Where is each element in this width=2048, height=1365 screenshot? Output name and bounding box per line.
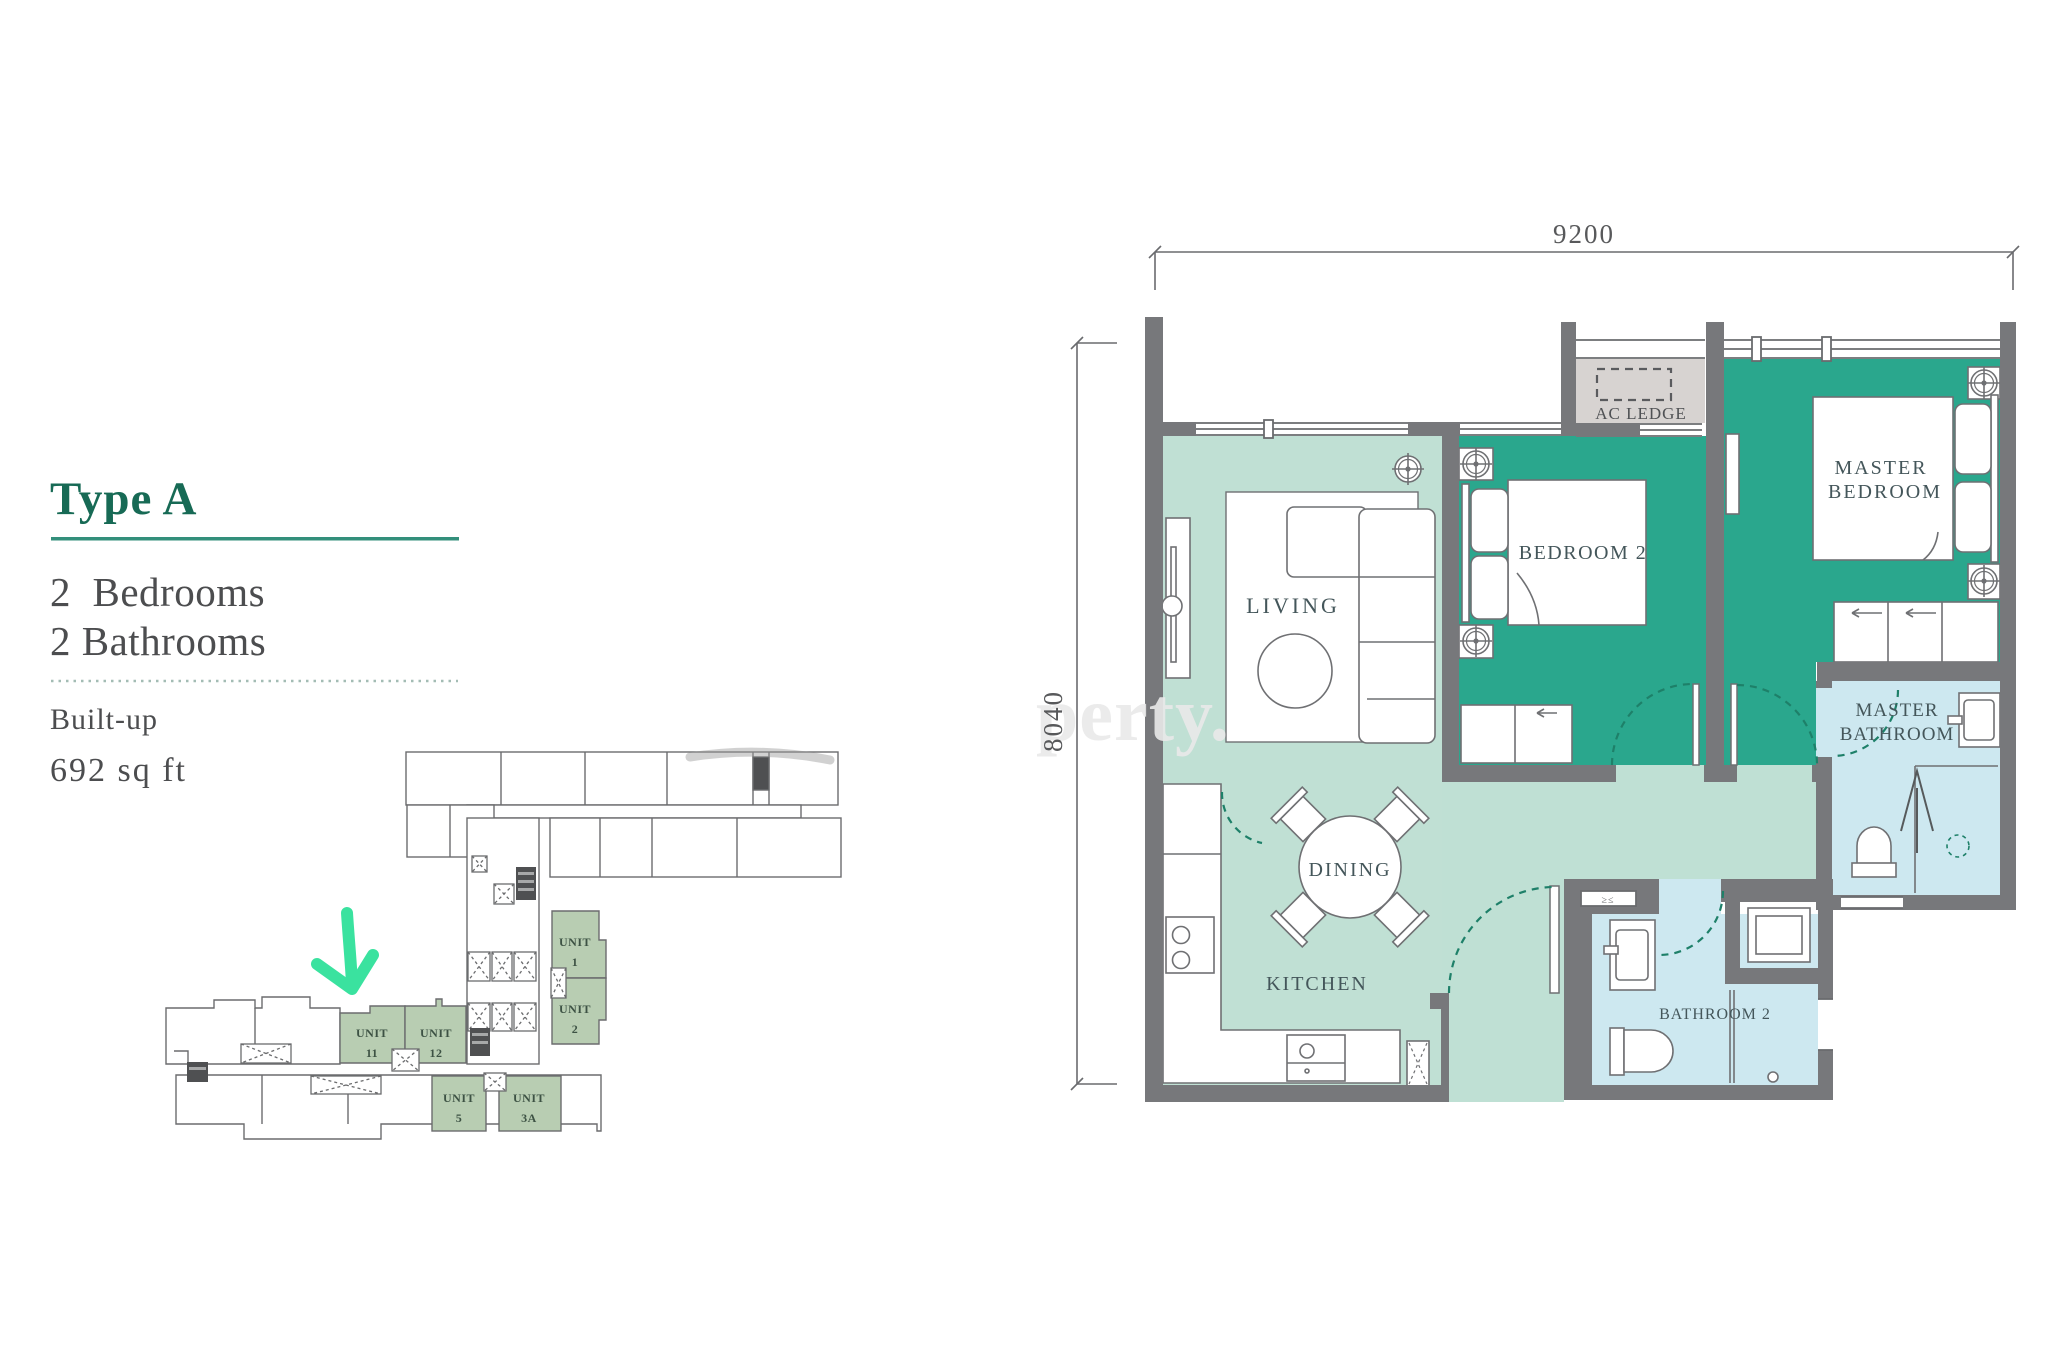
svg-text:KITCHEN: KITCHEN bbox=[1266, 973, 1368, 995]
svg-text:12: 12 bbox=[430, 1046, 443, 1060]
svg-text:2: 2 bbox=[572, 1022, 579, 1036]
svg-text:MASTER: MASTER bbox=[1834, 457, 1927, 479]
svg-text:AC LEDGE: AC LEDGE bbox=[1595, 404, 1687, 423]
svg-text:692 sq ft: 692 sq ft bbox=[50, 752, 187, 789]
svg-text:LIVING: LIVING bbox=[1246, 593, 1340, 618]
svg-text:UNIT: UNIT bbox=[559, 1002, 591, 1016]
svg-text:8040: 8040 bbox=[1038, 690, 1068, 752]
svg-text:5: 5 bbox=[456, 1111, 463, 1125]
svg-text:BATHROOM: BATHROOM bbox=[1840, 724, 1955, 745]
svg-text:1: 1 bbox=[572, 955, 579, 969]
svg-text:UNIT: UNIT bbox=[420, 1026, 452, 1040]
svg-text:11: 11 bbox=[366, 1046, 378, 1060]
svg-text:Type A: Type A bbox=[50, 473, 197, 525]
svg-text:3A: 3A bbox=[521, 1111, 537, 1125]
svg-text:UNIT: UNIT bbox=[513, 1091, 545, 1105]
svg-text:Built-up: Built-up bbox=[50, 703, 158, 736]
svg-text:BEDROOM: BEDROOM bbox=[1828, 481, 1942, 503]
svg-text:UNIT: UNIT bbox=[559, 935, 591, 949]
svg-text:UNIT: UNIT bbox=[356, 1026, 388, 1040]
svg-text:DINING: DINING bbox=[1308, 859, 1391, 881]
svg-text:UNIT: UNIT bbox=[443, 1091, 475, 1105]
svg-text:MASTER: MASTER bbox=[1855, 700, 1938, 721]
svg-text:2 Bathrooms: 2 Bathrooms bbox=[50, 618, 266, 664]
svg-text:BEDROOM 2: BEDROOM 2 bbox=[1519, 542, 1648, 564]
svg-text:BATHROOM 2: BATHROOM 2 bbox=[1659, 1006, 1771, 1023]
svg-text:≥≤: ≥≤ bbox=[1602, 895, 1615, 906]
svg-text:9200: 9200 bbox=[1553, 219, 1615, 249]
svg-text:2 Bedrooms: 2 Bedrooms bbox=[50, 569, 265, 615]
